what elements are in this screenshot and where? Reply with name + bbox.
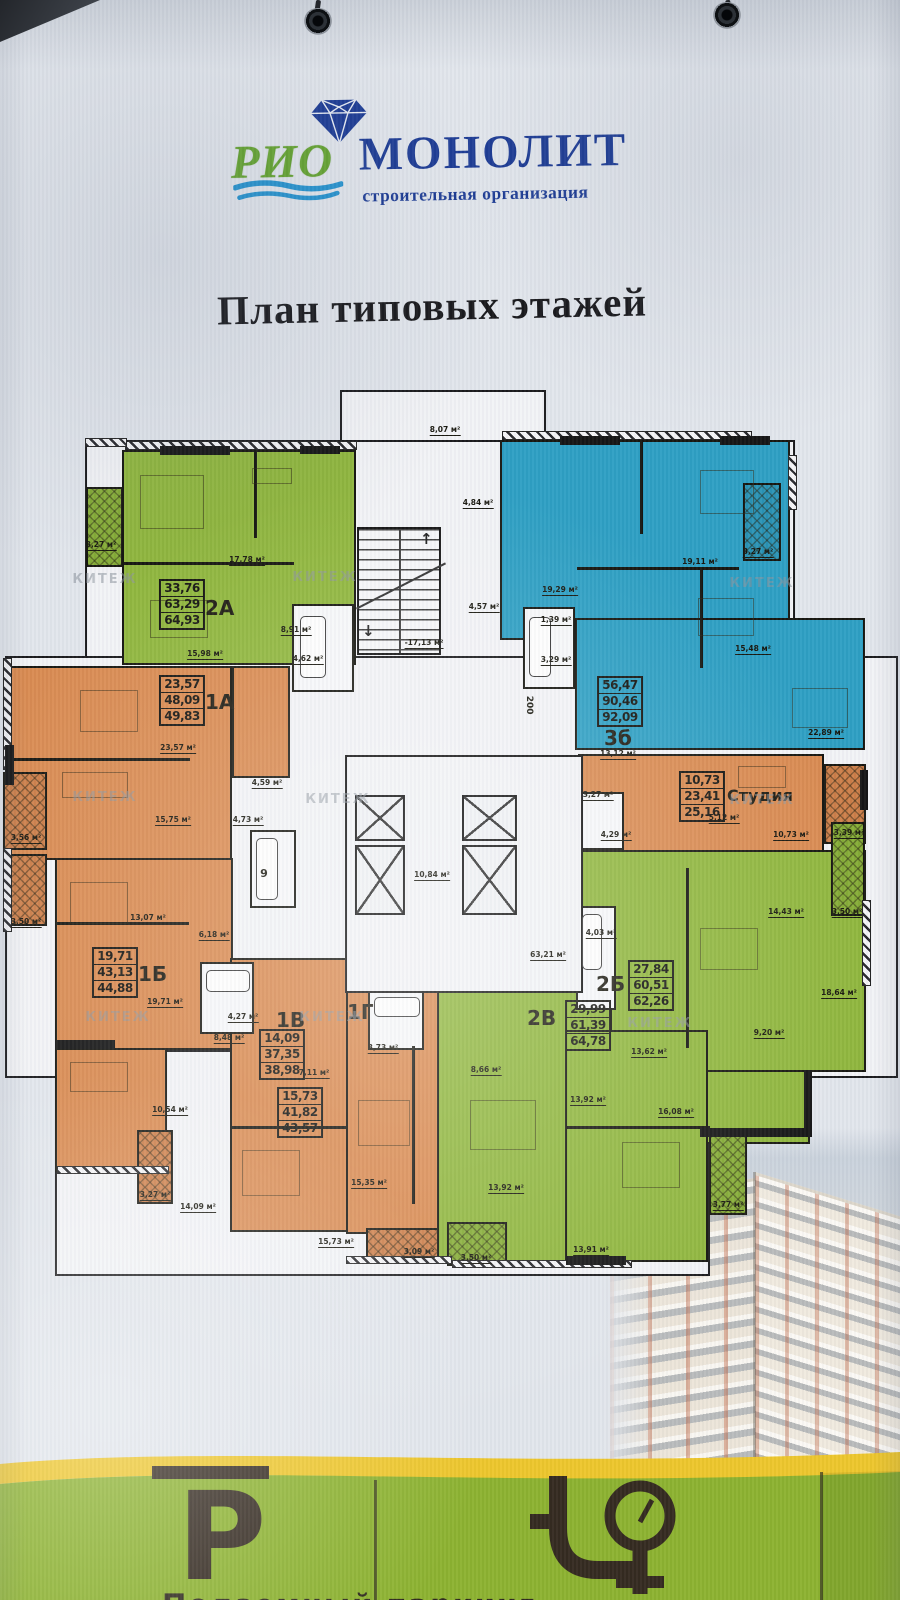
furniture — [792, 688, 848, 728]
wall — [254, 452, 257, 538]
wall — [412, 1046, 415, 1204]
room-area-label: -17,13 м² — [405, 639, 444, 649]
wall — [5, 745, 14, 785]
room-area-label: 3,73 м² — [368, 1044, 399, 1054]
room-area-label: 13,62 м² — [631, 1048, 667, 1058]
area-value: 64,93 — [161, 613, 203, 628]
room-area-label: 23,57 м² — [160, 744, 196, 754]
furniture — [698, 598, 754, 636]
room-area-label: 3,09 м² — [404, 1248, 435, 1258]
wall — [55, 1040, 115, 1049]
room-area-label: 13,92 м² — [570, 1096, 606, 1106]
apartment-type-label-3b: 3б — [604, 726, 632, 750]
area-value: 14,09 — [261, 1031, 303, 1047]
stair-up-arrow-icon: ↑ — [420, 530, 433, 548]
area-value: 15,73 — [279, 1089, 321, 1105]
room-area-label: 7,11 м² — [299, 1069, 330, 1079]
apartment-area-box-1a: 23,57 48,09 49,83 — [159, 675, 205, 726]
area-value: 41,82 — [279, 1105, 321, 1121]
wall — [300, 446, 340, 454]
apartment-area-box-3b: 56,47 90,46 92,09 — [597, 676, 643, 727]
room-area-label: 14,09 м² — [180, 1203, 216, 1213]
area-value: 19,71 — [94, 949, 136, 965]
area-value: 60,51 — [630, 978, 672, 994]
room-area-label: 4,03 м² — [586, 929, 617, 939]
apartment-1a-area — [232, 666, 290, 778]
room-area-label: 10,54 м² — [152, 1106, 188, 1116]
apartment-area-box-1g: 15,73 41,82 43,57 — [277, 1087, 323, 1138]
wall — [122, 562, 294, 565]
stair-diagonal — [356, 562, 446, 609]
exterior-wall — [85, 438, 127, 447]
room-area-label: 3,27 м² — [743, 548, 774, 558]
area-value: 92,09 — [599, 710, 641, 725]
room-area-label: 15,35 м² — [351, 1179, 387, 1189]
area-value: 44,88 — [94, 981, 136, 996]
room-area-label: 4,29 м² — [601, 831, 632, 841]
bathroom — [580, 792, 624, 850]
apartment-type-label-2v: 2В — [527, 1006, 556, 1030]
room-area-label: 3,27 м² — [86, 541, 117, 551]
room-area-label: 19,71 м² — [147, 998, 183, 1008]
furniture — [738, 766, 786, 788]
bathtub-icon — [374, 997, 420, 1017]
room-area-label: 13,92 м² — [488, 1184, 524, 1194]
room-area-label: 15,73 м² — [318, 1238, 354, 1248]
wall — [160, 446, 230, 455]
bathtub-icon — [529, 617, 551, 677]
stair-divider — [399, 529, 401, 653]
watermark: КИТЕЖ — [85, 1010, 150, 1025]
furniture — [470, 1100, 536, 1150]
furniture — [242, 1150, 300, 1196]
apartment-type-label-1b: 1Б — [138, 962, 167, 986]
area-value: 56,47 — [599, 678, 641, 694]
waves-icon — [233, 178, 343, 206]
furniture — [80, 690, 138, 732]
room-area-label: 14,43 м² — [768, 908, 804, 918]
exterior-wall — [502, 431, 752, 440]
room-area-label: 15,98 м² — [187, 650, 223, 660]
wall — [567, 1126, 710, 1129]
brand-subtitle: строительная организация — [362, 182, 588, 207]
room-area-label: 3,27 м² — [140, 1191, 171, 1201]
room-area-label: 16,08 м² — [658, 1108, 694, 1118]
room-area-label: 8,91 м² — [281, 626, 312, 636]
exterior-wall — [57, 1166, 169, 1174]
area-value: 10,73 — [681, 773, 723, 789]
room-area-label: 3,50 м² — [11, 918, 42, 928]
footer-divider — [374, 1480, 377, 1600]
room-area-label: 13,07 м² — [130, 914, 166, 924]
area-value: 64,78 — [567, 1034, 609, 1049]
furniture — [700, 470, 754, 514]
room-area-label: 8,66 м² — [471, 1066, 502, 1076]
room-area-label: 13,12 м² — [600, 750, 636, 760]
area-value: 63,29 — [161, 597, 203, 613]
area-value: 38,98 — [261, 1063, 303, 1078]
exterior-wall — [862, 900, 871, 986]
room-area-label: 5,12 м² — [709, 814, 740, 824]
room-area-label: 19,11 м² — [682, 558, 718, 568]
wall — [566, 1256, 626, 1265]
watermark: КИТЕЖ — [305, 792, 370, 807]
room-area-label: 4,73 м² — [233, 816, 264, 826]
exterior-wall — [346, 1256, 452, 1264]
room-area-label: 3,50 м² — [832, 908, 863, 918]
room-area-label: 3,50 м² — [461, 1254, 492, 1264]
room-area-label: 17,78 м² — [229, 556, 265, 566]
apartment-area-box-2a: 33,76 63,29 64,93 — [159, 579, 205, 630]
apartment-type-label-2a: 2А — [205, 596, 234, 620]
apartment-type-label-1a: 1А — [205, 690, 234, 714]
elevator-shaft — [355, 845, 405, 915]
watermark: КИТЕЖ — [627, 1016, 692, 1031]
area-value: 61,39 — [567, 1018, 609, 1034]
area-value: 90,46 — [599, 694, 641, 710]
room-area-label: 3,27 м² — [583, 791, 614, 801]
footer-fold-shade — [820, 1471, 900, 1600]
elevator-shaft — [462, 845, 517, 915]
furniture — [70, 882, 128, 924]
room-area-label: 4,59 м² — [252, 779, 283, 789]
wall — [560, 436, 620, 445]
wall — [804, 1070, 812, 1132]
watermark: КИТЕЖ — [729, 793, 794, 808]
room-area-label: 3,77 м² — [713, 1201, 744, 1211]
room-area-label: 1,39 м² — [541, 616, 572, 626]
apartment-area-box-2v: 29,99 61,39 64,78 — [565, 1000, 611, 1051]
elevator-shaft — [462, 795, 517, 841]
room-area-label: 6,18 м² — [199, 931, 230, 941]
grommet-eyelet — [303, 8, 333, 35]
room-area-label: 10,84 м² — [414, 871, 450, 881]
room-area-label: 8,07 м² — [430, 426, 461, 436]
brand-name-monolit: МОНОЛИТ — [358, 123, 628, 182]
area-value: 48,09 — [161, 693, 203, 709]
room-area-label: 4,84 м² — [463, 499, 494, 509]
room-area-label: 13,91 м² — [573, 1246, 609, 1256]
footer-caption: Подземный паркинг — [162, 1588, 536, 1600]
wall — [860, 770, 868, 810]
apartment-area-box-1b: 19,71 43,13 44,88 — [92, 947, 138, 998]
area-value: 29,99 — [567, 1002, 609, 1018]
room-area-label: 10,73 м² — [773, 831, 809, 841]
room-area-label: 15,48 м² — [735, 645, 771, 655]
room-area-label: 200 — [524, 696, 534, 715]
furniture — [70, 1062, 128, 1092]
parking-icon: Р — [177, 1476, 266, 1598]
area-value: 33,76 — [161, 581, 203, 597]
floor-plan: ↑ ↓ 33,76 6 — [0, 0, 900, 1600]
watermark: КИТЕЖ — [72, 790, 137, 805]
room-area-label: 4,57 м² — [469, 603, 500, 613]
area-value: 27,84 — [630, 962, 672, 978]
room-area-label: 4,27 м² — [228, 1013, 259, 1023]
area-value: 49,83 — [161, 709, 203, 724]
area-value: 37,35 — [261, 1047, 303, 1063]
wall — [720, 436, 770, 445]
watermark: КИТЕЖ — [72, 572, 137, 587]
room-area-label: 3,29 м² — [541, 656, 572, 666]
room-area-label: 9 — [260, 868, 268, 881]
footer-green-band — [0, 1472, 900, 1600]
stair-down-arrow-icon: ↓ — [362, 622, 375, 640]
area-value: 43,57 — [279, 1121, 321, 1136]
watermark: КИТЕЖ — [299, 1010, 364, 1025]
banner-photo: { "brand": { "name_top": "РИО", "name_ma… — [0, 0, 900, 1600]
furniture — [700, 928, 758, 970]
footer-divider — [820, 1472, 823, 1600]
room-area-label: 19,29 м² — [542, 586, 578, 596]
area-value: 43,13 — [94, 965, 136, 981]
apartment-type-label-2b: 2Б — [596, 972, 625, 996]
room-area-label: 3,39 м² — [834, 829, 865, 839]
room-area-label: 8,48 м² — [214, 1034, 245, 1044]
wall — [12, 758, 190, 761]
area-value: 23,41 — [681, 789, 723, 805]
watermark: КИТЕЖ — [292, 570, 357, 585]
area-value: 62,26 — [630, 994, 672, 1009]
furniture — [622, 1142, 680, 1188]
room-area-label: 4,62 м² — [293, 655, 324, 665]
page-title: План типовых этажей — [217, 278, 648, 335]
wall — [640, 442, 643, 534]
room-area-label: 22,89 м² — [808, 729, 844, 739]
room-area-label: 3,56 м² — [11, 834, 42, 844]
pipe-gauge-icon — [512, 1472, 682, 1600]
room-area-label: 9,20 м² — [754, 1029, 785, 1039]
grommet-eyelet — [712, 2, 742, 29]
room-area-label: 15,75 м² — [155, 816, 191, 826]
wall — [700, 1128, 812, 1137]
bathtub-icon — [582, 914, 602, 970]
area-value: 23,57 — [161, 677, 203, 693]
bathtub-icon — [206, 970, 250, 992]
furniture — [252, 468, 292, 484]
exterior-wall — [788, 455, 797, 510]
furniture — [358, 1100, 410, 1146]
footer-strip — [0, 1428, 900, 1600]
watermark: КИТЕЖ — [729, 576, 794, 591]
balcony-2a — [86, 487, 123, 567]
furniture — [140, 475, 204, 529]
room-area-label: 63,21 м² — [530, 951, 566, 961]
room-area-label: 18,64 м² — [821, 989, 857, 999]
apartment-area-box-2b: 27,84 60,51 62,26 — [628, 960, 674, 1011]
